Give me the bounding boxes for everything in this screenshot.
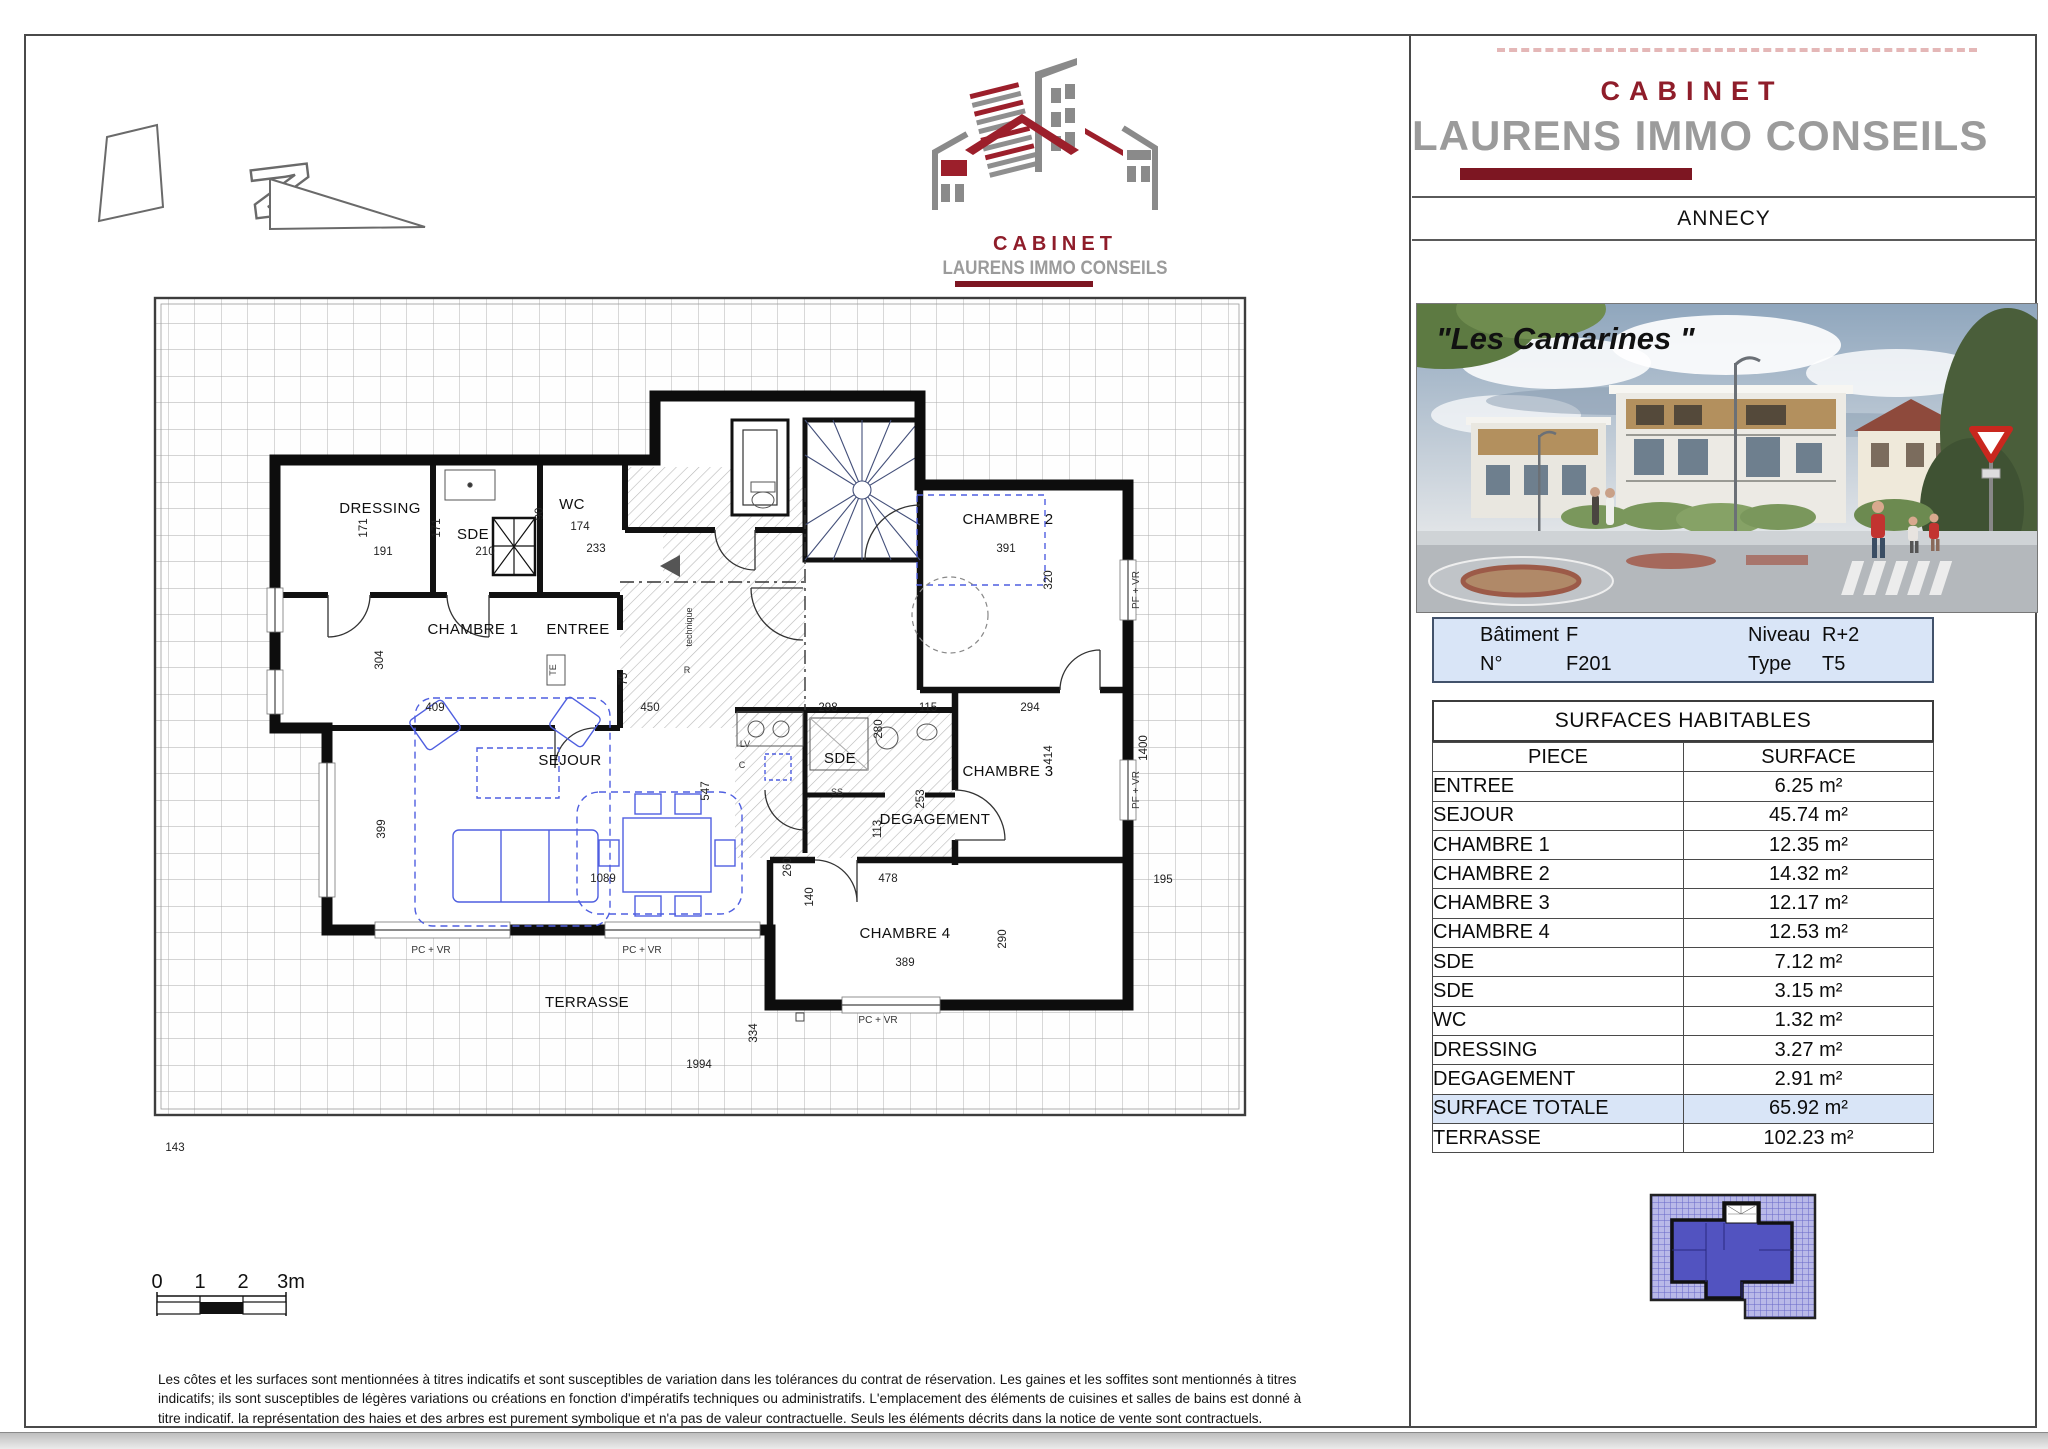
dim-label: 1994 xyxy=(686,1059,712,1071)
dim-label: 260 xyxy=(782,857,794,876)
dim-label: 113 xyxy=(872,820,884,838)
table-row: CHAMBRE 112.35 m² xyxy=(1433,830,1934,859)
room-label: CHAMBRE 2 xyxy=(962,511,1053,528)
room-label: ENTREE xyxy=(546,621,609,638)
numero-label: N° xyxy=(1480,653,1566,676)
table-header-row: PIECE SURFACE xyxy=(1433,743,1934,772)
room-label: SDE xyxy=(824,750,856,767)
surface-cell: 102.23 m² xyxy=(1684,1123,1934,1152)
disclaimer-line: Les côtes et les surfaces sont mentionné… xyxy=(158,1370,1393,1389)
disclaimer-line: titre indicatif. la représentation des h… xyxy=(158,1409,1393,1428)
table-row: DRESSING3.27 m² xyxy=(1433,1035,1934,1064)
project-photo: "Les Camarines " xyxy=(1416,303,2038,613)
col-surface: SURFACE xyxy=(1684,743,1934,772)
dim-label: 290 xyxy=(997,929,1009,948)
plan-thumbnail xyxy=(1646,1190,1820,1324)
scale-label: 1 xyxy=(194,1271,205,1293)
panel-header: CABINET LAURENS IMMO CONSEILS xyxy=(1412,36,2036,196)
surface-cell: 12.17 m² xyxy=(1684,889,1934,918)
agency-logo: CABINET LAURENS IMMO CONSEILS xyxy=(925,50,1185,292)
dim-label: 191 xyxy=(373,546,392,558)
room-label: TERRASSE xyxy=(545,994,629,1011)
table-row: SDE7.12 m² xyxy=(1433,948,1934,977)
batiment-label: Bâtiment xyxy=(1480,624,1566,647)
room-label: SEJOUR xyxy=(538,752,601,769)
piece-cell: SDE xyxy=(1433,977,1684,1006)
surface-cell: 7.12 m² xyxy=(1684,948,1934,977)
dim-label: 304 xyxy=(374,650,386,670)
dim-label: 298 xyxy=(818,702,837,714)
technical-shaft xyxy=(493,518,535,575)
col-piece: PIECE xyxy=(1433,743,1684,772)
dim-label: 294 xyxy=(1020,702,1040,714)
room-label: CHAMBRE 4 xyxy=(859,925,950,942)
floor-plan: DRESSING SDE WC CHAMBRE 1 ENTREE CHAMBRE… xyxy=(115,270,1415,1255)
dim-label: 115 xyxy=(919,702,937,714)
table-row: CHAMBRE 312.17 m² xyxy=(1433,889,1934,918)
logo-brand-line1: CABINET xyxy=(993,233,1117,255)
surface-cell: 2.91 m² xyxy=(1684,1065,1934,1094)
dim-label: 195 xyxy=(1153,874,1172,886)
window-label: PF + VR xyxy=(1131,771,1142,809)
room-label: SDE xyxy=(457,526,489,543)
piece-cell: CHAMBRE 1 xyxy=(1433,830,1684,859)
dim-label: 1400 xyxy=(1138,735,1150,761)
piece-cell: CHAMBRE 4 xyxy=(1433,918,1684,947)
room-label: CHAMBRE 3 xyxy=(962,763,1053,780)
window-label: PC + VR xyxy=(622,945,661,956)
dim-label: 233 xyxy=(586,543,605,555)
dim-label: 171 xyxy=(358,518,370,537)
faded-dashes xyxy=(1497,48,1977,52)
brand-cabinet: CABINET xyxy=(1412,76,1972,107)
room-label: CHAMBRE 1 xyxy=(427,621,518,638)
plan-sheet-page: N CABINET LAURENS IMMO CONSEILS xyxy=(0,0,2048,1449)
panel-divider xyxy=(1409,34,1411,1428)
batiment-value: F xyxy=(1566,624,1748,647)
piece-cell: SURFACE TOTALE xyxy=(1433,1094,1684,1123)
dim-label: 409 xyxy=(425,702,444,714)
room-label: WC xyxy=(559,496,585,513)
brand-underline xyxy=(1460,168,1692,180)
surface-cell: 3.27 m² xyxy=(1684,1035,1934,1064)
elevator xyxy=(732,420,788,515)
surface-cell: 1.32 m² xyxy=(1684,1006,1934,1035)
window-label: PC + VR xyxy=(858,1015,897,1026)
table-row: CHAMBRE 214.32 m² xyxy=(1433,860,1934,889)
window-label: PF + VR xyxy=(1131,571,1142,609)
disclaimer-text: Les côtes et les surfaces sont mentionné… xyxy=(158,1370,1393,1428)
disclaimer-line: indicatifs; ils sont susceptibles de lég… xyxy=(158,1389,1393,1408)
fixture-label: LV xyxy=(740,739,750,749)
table-row: TERRASSE102.23 m² xyxy=(1433,1123,1934,1152)
window-label: PC + VR xyxy=(411,945,450,956)
fixture-label: C xyxy=(739,760,746,770)
table-row: SEJOUR45.74 m² xyxy=(1433,801,1934,830)
room-label: DRESSING xyxy=(339,500,421,517)
dim-label: 389 xyxy=(895,957,914,969)
dim-label: 414 xyxy=(1043,745,1055,765)
surface-cell: 6.25 m² xyxy=(1684,772,1934,801)
surface-cell: 65.92 m² xyxy=(1684,1094,1934,1123)
photo-caption: "Les Camarines " xyxy=(1436,321,1696,356)
scale-label: 2 xyxy=(237,1271,248,1293)
dim-label: 90 xyxy=(534,508,546,521)
unit-info-box: Bâtiment F Niveau R+2 N° F201 Type T5 xyxy=(1432,617,1934,683)
surface-cell: 3.15 m² xyxy=(1684,977,1934,1006)
fixture-label: technique xyxy=(684,607,694,646)
table-row: SDE3.15 m² xyxy=(1433,977,1934,1006)
dim-label: 320 xyxy=(1043,570,1055,589)
city-row: ANNECY xyxy=(1412,196,2036,241)
piece-cell: TERRASSE xyxy=(1433,1123,1684,1152)
piece-cell: SEJOUR xyxy=(1433,801,1684,830)
piece-cell: CHAMBRE 3 xyxy=(1433,889,1684,918)
table-row: ENTREE6.25 m² xyxy=(1433,772,1934,801)
piece-cell: DEGAGEMENT xyxy=(1433,1065,1684,1094)
surface-cell: 14.32 m² xyxy=(1684,860,1934,889)
surfaces-title: SURFACES HABITABLES xyxy=(1432,700,1934,742)
bottom-strip xyxy=(0,1432,2048,1449)
surface-cell: 12.53 m² xyxy=(1684,918,1934,947)
table-row: DEGAGEMENT2.91 m² xyxy=(1433,1065,1934,1094)
numero-value: F201 xyxy=(1566,653,1748,676)
dim-label: 547 xyxy=(700,781,712,800)
dim-label: 140 xyxy=(804,887,816,906)
niveau-label: Niveau xyxy=(1748,624,1822,647)
dim-label: 171 xyxy=(431,518,443,537)
roundabout xyxy=(1429,557,1613,605)
room-label: DEGAGEMENT xyxy=(880,811,991,828)
brand-name: LAURENS IMMO CONSEILS xyxy=(1412,112,1972,160)
scale-label: 0 xyxy=(151,1271,162,1293)
dim-label: 478 xyxy=(878,873,897,885)
piece-cell: ENTREE xyxy=(1433,772,1684,801)
table-row-total: SURFACE TOTALE65.92 m² xyxy=(1433,1094,1934,1123)
piece-cell: DRESSING xyxy=(1433,1035,1684,1064)
dim-label: 253 xyxy=(915,789,927,808)
piece-cell: WC xyxy=(1433,1006,1684,1035)
table-row: WC1.32 m² xyxy=(1433,1006,1934,1035)
dim-label: 399 xyxy=(376,819,388,838)
piece-cell: SDE xyxy=(1433,948,1684,977)
dim-label: 391 xyxy=(996,543,1015,555)
type-value: T5 xyxy=(1822,653,1932,676)
type-label: Type xyxy=(1748,653,1822,676)
dim-label: 450 xyxy=(640,702,659,714)
dim-label: 210 xyxy=(475,546,494,558)
scale-bar: 0 1 2 3m xyxy=(140,1268,360,1338)
dim-label: 1089 xyxy=(590,873,616,885)
fixture-label: TE xyxy=(548,664,558,676)
surfaces-table: PIECE SURFACE ENTREE6.25 m² SEJOUR45.74 … xyxy=(1432,742,1934,1153)
surface-cell: 45.74 m² xyxy=(1684,801,1934,830)
niveau-value: R+2 xyxy=(1822,624,1932,647)
dim-label: 75 xyxy=(618,673,630,686)
scale-label: 3m xyxy=(277,1271,305,1293)
dim-label: 280 xyxy=(873,719,885,738)
surface-cell: 12.35 m² xyxy=(1684,830,1934,859)
dim-label: 143 xyxy=(165,1142,184,1154)
dim-label: 334 xyxy=(748,1023,760,1043)
north-arrow-icon: N xyxy=(95,115,435,280)
table-row: CHAMBRE 412.53 m² xyxy=(1433,918,1934,947)
fixture-label: SS xyxy=(831,787,843,797)
dim-label: 174 xyxy=(570,521,590,533)
piece-cell: CHAMBRE 2 xyxy=(1433,860,1684,889)
fixture-label: R xyxy=(684,665,691,675)
